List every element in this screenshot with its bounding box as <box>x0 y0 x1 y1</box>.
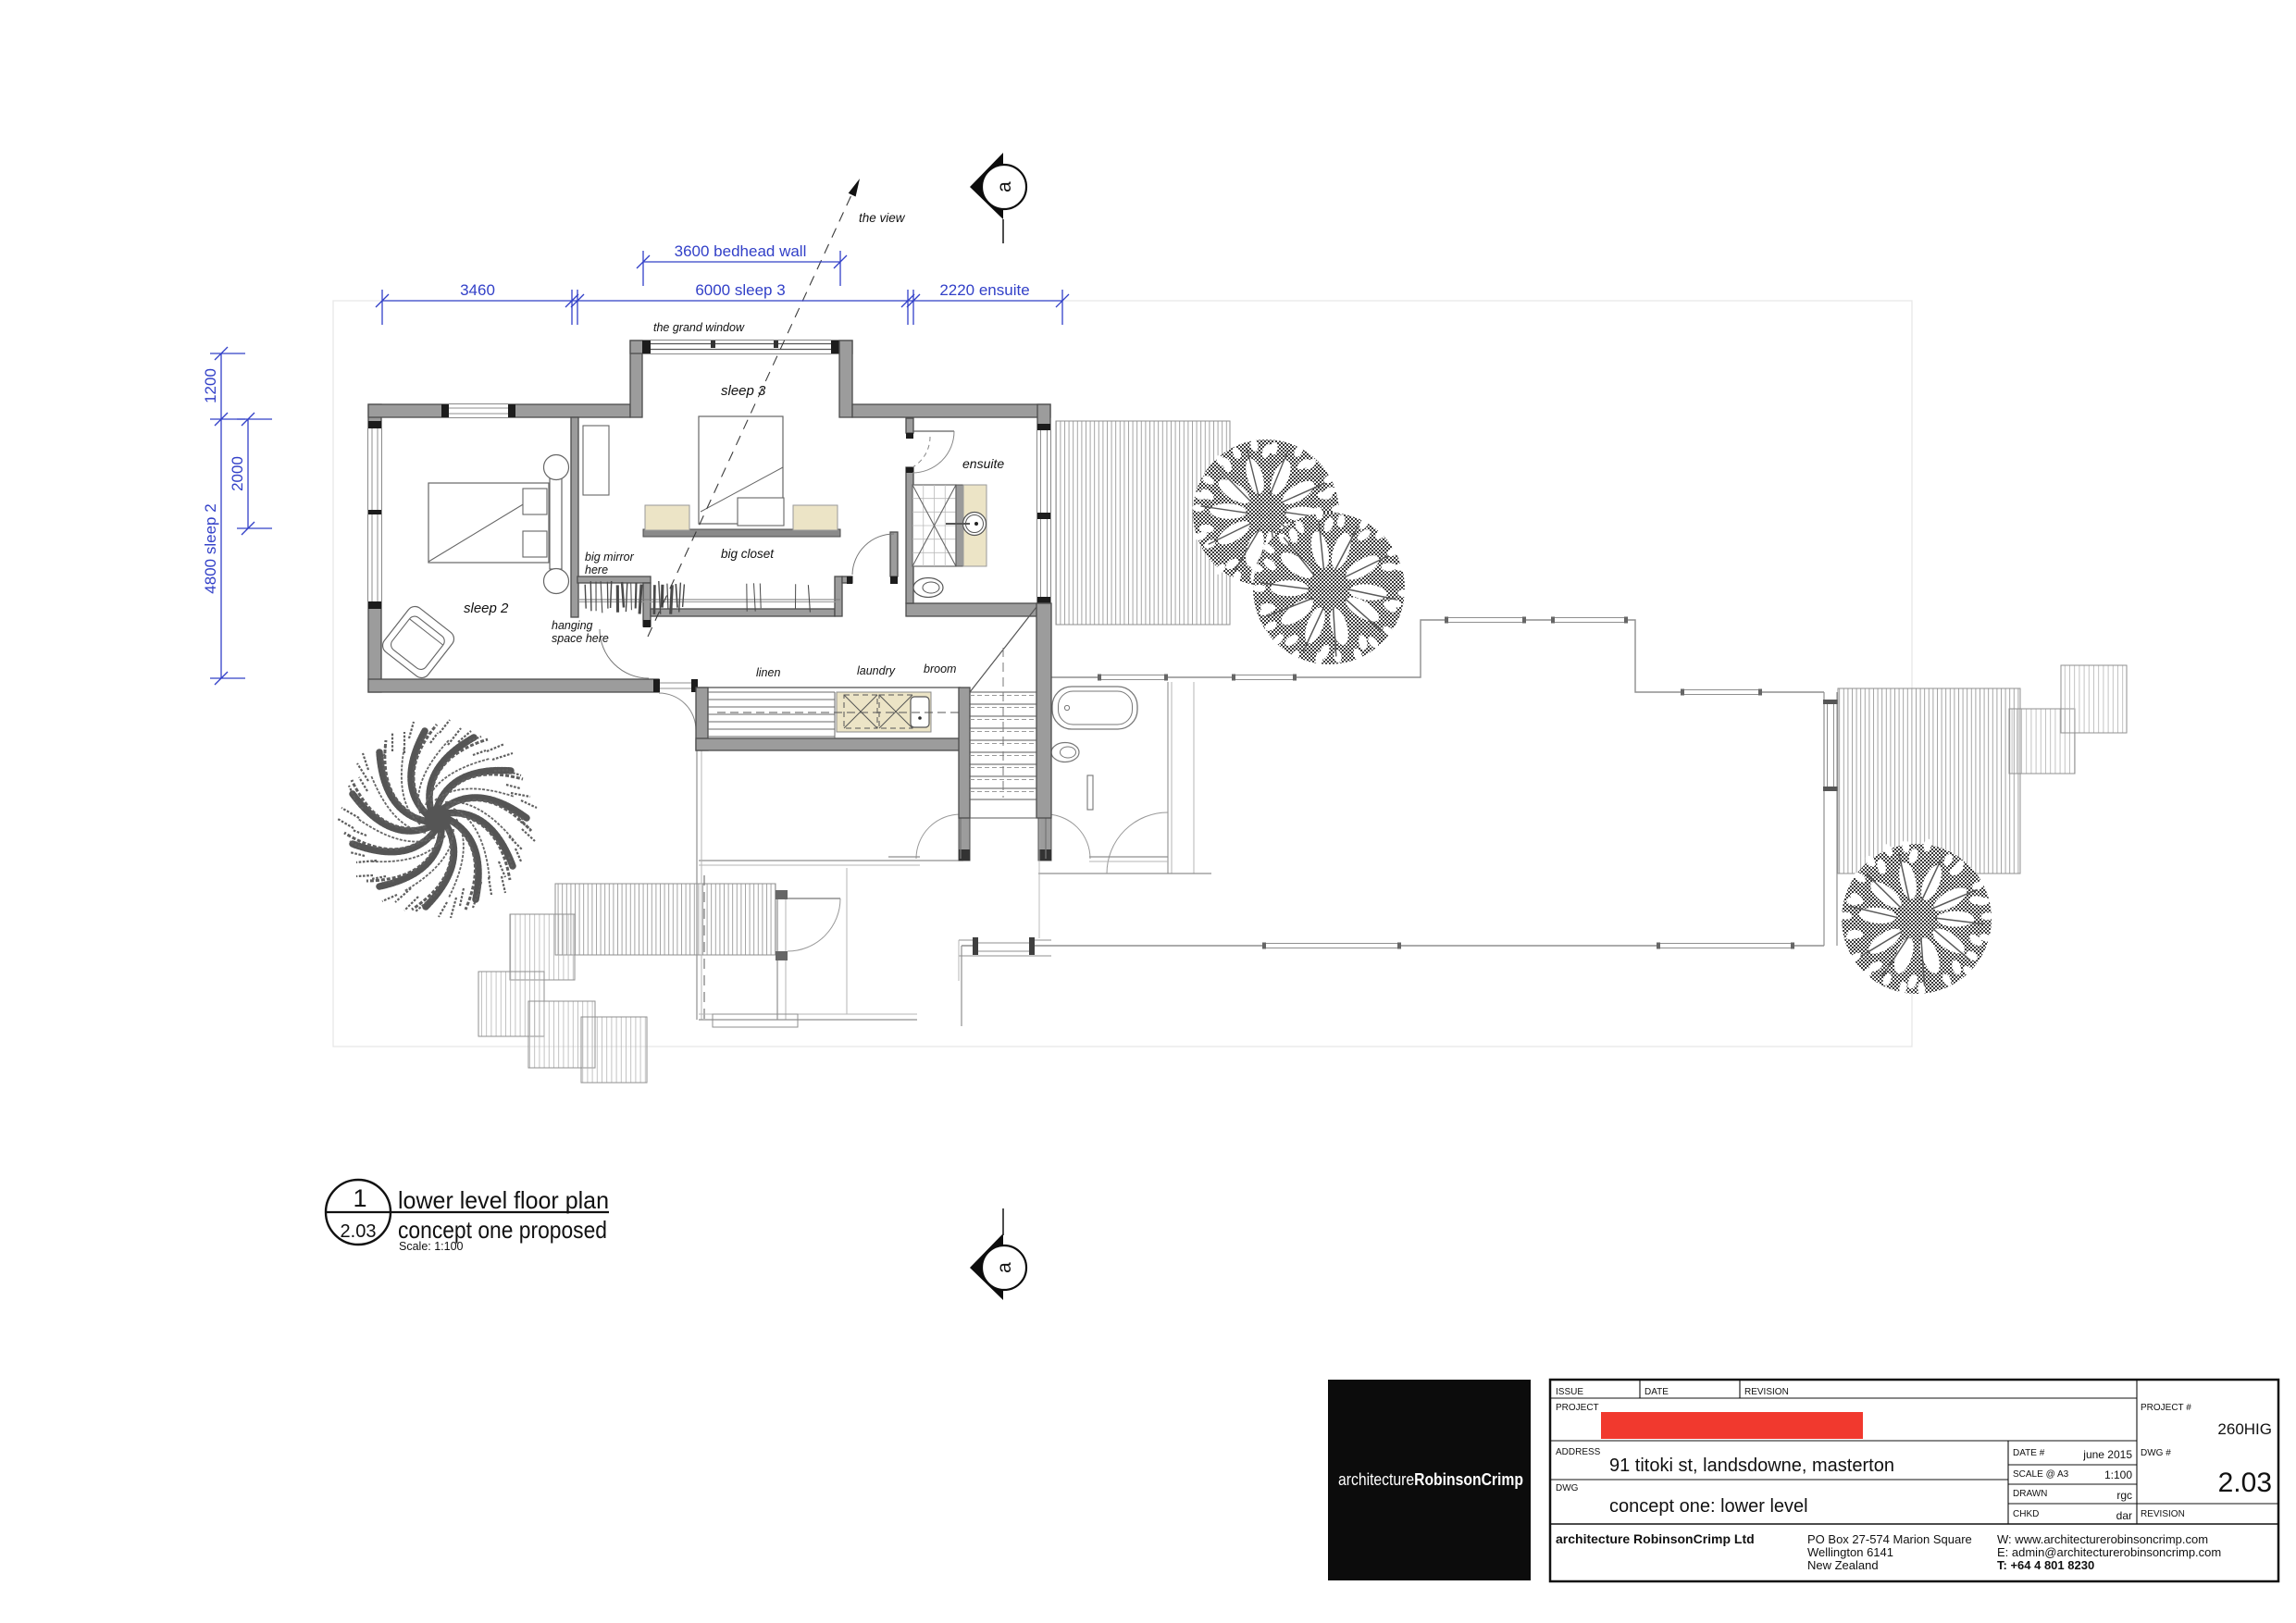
svg-text:PROJECT: PROJECT <box>1556 1403 1599 1413</box>
svg-text:W: www.architecturerobinsoncr: W: www.architecturerobinsoncrimp.com <box>1997 1532 2208 1546</box>
svg-text:a: a <box>994 181 1015 192</box>
svg-text:REVISION: REVISION <box>1744 1387 1789 1397</box>
svg-text:New Zealand: New Zealand <box>1807 1558 1879 1572</box>
svg-text:june 2015: june 2015 <box>2082 1448 2132 1461</box>
svg-text:big closet: big closet <box>721 547 775 561</box>
svg-text:REVISION: REVISION <box>2141 1509 2185 1519</box>
svg-text:SCALE @ A3: SCALE @ A3 <box>2013 1469 2069 1480</box>
svg-text:DWG #: DWG # <box>2141 1448 2171 1458</box>
svg-text:broom: broom <box>924 663 956 675</box>
svg-text:dar: dar <box>2116 1509 2132 1522</box>
svg-text:laundry: laundry <box>857 664 896 677</box>
svg-text:rgc: rgc <box>2116 1489 2132 1502</box>
svg-text:91 titoki st, landsdowne, mast: 91 titoki st, landsdowne, masterton <box>1609 1456 1894 1476</box>
svg-text:PROJECT #: PROJECT # <box>2141 1403 2191 1413</box>
svg-text:1: 1 <box>353 1184 366 1212</box>
svg-text:the grand window: the grand window <box>653 321 745 334</box>
svg-text:lower level floor plan: lower level floor plan <box>398 1186 609 1214</box>
svg-text:architectureRobinsonCrimp: architectureRobinsonCrimp <box>1338 1469 1523 1489</box>
svg-text:sleep 2: sleep 2 <box>464 601 509 616</box>
svg-text:2220 ensuite: 2220 ensuite <box>939 281 1029 299</box>
svg-text:2.03: 2.03 <box>2218 1468 2272 1498</box>
svg-text:2000: 2000 <box>229 456 246 491</box>
svg-text:E: admin@architecturerobinson: E: admin@architecturerobinsoncrimp.com <box>1997 1545 2221 1559</box>
svg-text:sleep 3: sleep 3 <box>721 383 766 399</box>
svg-text:PO Box 27-574 Marion Square: PO Box 27-574 Marion Square <box>1807 1532 1972 1546</box>
svg-text:3460: 3460 <box>460 281 495 299</box>
svg-text:big mirror: big mirror <box>585 551 635 564</box>
svg-text:4800 sleep 2: 4800 sleep 2 <box>202 503 219 593</box>
svg-text:T: +64 4 801 8230: T: +64 4 801 8230 <box>1997 1558 2094 1572</box>
svg-text:2.03: 2.03 <box>341 1221 377 1242</box>
svg-text:ISSUE: ISSUE <box>1556 1387 1583 1397</box>
svg-text:3600 bedhead wall: 3600 bedhead wall <box>675 242 807 260</box>
svg-text:concept one: lower level: concept one: lower level <box>1609 1496 1808 1517</box>
svg-text:1200: 1200 <box>202 368 219 403</box>
svg-text:1:100: 1:100 <box>2104 1468 2132 1481</box>
svg-text:hanging: hanging <box>552 619 593 632</box>
svg-text:Scale: 1:100: Scale: 1:100 <box>399 1240 464 1253</box>
svg-text:DATE #: DATE # <box>2013 1448 2045 1458</box>
svg-text:a: a <box>994 1262 1015 1273</box>
svg-text:here: here <box>585 564 608 576</box>
svg-text:Wellington 6141: Wellington 6141 <box>1807 1545 1893 1559</box>
svg-text:DATE: DATE <box>1644 1387 1669 1397</box>
svg-text:CHKD: CHKD <box>2013 1509 2039 1519</box>
svg-text:linen: linen <box>756 666 780 679</box>
svg-text:DWG: DWG <box>1556 1483 1579 1493</box>
svg-text:ensuite: ensuite <box>962 456 1004 471</box>
svg-text:the view: the view <box>859 211 906 225</box>
svg-text:space here: space here <box>552 632 609 645</box>
svg-text:DRAWN: DRAWN <box>2013 1489 2047 1499</box>
svg-text:260HIG: 260HIG <box>2217 1420 2272 1438</box>
svg-text:6000 sleep 3: 6000 sleep 3 <box>695 281 785 299</box>
svg-text:architecture RobinsonCrimp Ltd: architecture RobinsonCrimp Ltd <box>1556 1531 1755 1546</box>
svg-text:ADDRESS: ADDRESS <box>1556 1447 1601 1457</box>
